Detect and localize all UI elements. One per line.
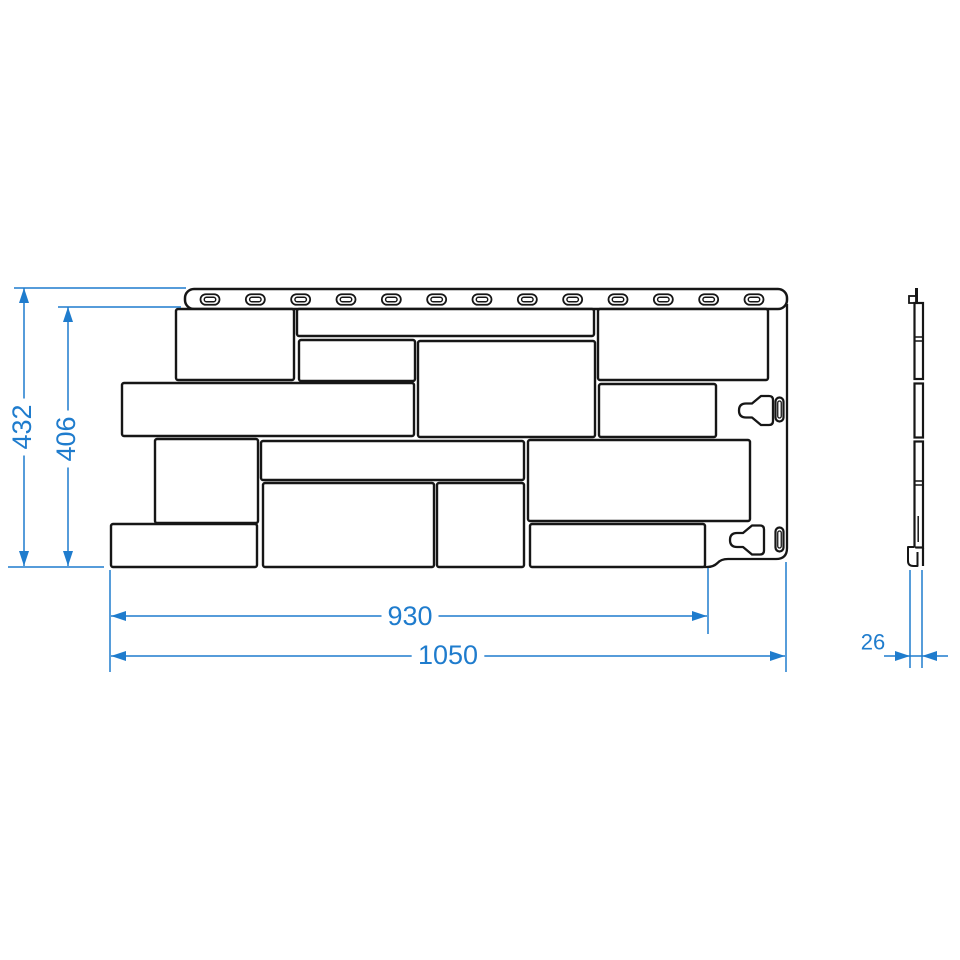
dimension-field-width: 930 (111, 601, 707, 631)
front-view (111, 289, 787, 567)
nail-slot-inner (703, 297, 715, 302)
dimension-arrow (895, 651, 910, 661)
side-profile-segment (915, 384, 924, 438)
stone-block (437, 483, 524, 567)
nail-slot-inner (431, 297, 443, 302)
dimension-arrow (111, 651, 126, 661)
dimension-arrow (63, 551, 73, 566)
dim-label-field-width: 930 (387, 601, 432, 631)
stone-block (263, 483, 434, 567)
panel-drawing-svg: 432406930105026 (0, 0, 960, 960)
stone-block (261, 441, 524, 480)
nail-slot-inner (658, 297, 670, 302)
drawing-canvas: 432406930105026 (0, 0, 960, 960)
mounting-hook (730, 526, 784, 555)
stone-blocks (111, 309, 768, 567)
dimension-arrow (19, 288, 29, 303)
side-view (908, 288, 923, 566)
stone-block (155, 439, 258, 523)
side-profile-hook (908, 547, 918, 566)
stone-block (598, 309, 768, 380)
dimension-arrow (770, 651, 785, 661)
dimension-arrow (19, 551, 29, 566)
dim-label-overall-height: 432 (7, 404, 37, 449)
stone-block (299, 340, 415, 381)
dimension-arrow (111, 611, 126, 621)
hook-funnel (730, 526, 764, 555)
stone-block (530, 524, 705, 567)
mounting-hook (739, 396, 784, 425)
stone-block (418, 341, 595, 437)
nail-slot-inner (386, 297, 398, 302)
dimension-arrow (692, 611, 707, 621)
dimension-field-height: 406 (51, 307, 81, 566)
nail-slot-inner (340, 297, 352, 302)
dimension-arrow (922, 651, 937, 661)
nail-slot-inner (295, 297, 307, 302)
stone-block (297, 309, 594, 336)
stone-block (111, 524, 257, 567)
dimension-arrow (63, 307, 73, 322)
stone-block (176, 309, 294, 380)
dimension-overall-height: 432 (7, 288, 37, 566)
nail-slot-inner (250, 297, 261, 302)
hook-funnel (739, 396, 773, 425)
stone-block (122, 383, 414, 436)
nail-slot-inner (476, 297, 488, 302)
dim-label-overall-width: 1050 (418, 640, 478, 670)
stone-block (528, 440, 750, 521)
nail-slot-inner (567, 297, 579, 302)
nail-slot-inner (612, 297, 624, 302)
dimension-panel-thickness: 26 (861, 630, 948, 662)
nail-slot-inner (522, 297, 534, 302)
nail-slot-inner (748, 297, 760, 302)
dimension-overall-width: 1050 (111, 640, 785, 670)
dim-label-field-height: 406 (51, 416, 81, 461)
stone-block (599, 384, 716, 437)
dim-label-panel-thickness: 26 (861, 630, 885, 655)
nail-slot-inner (204, 297, 216, 302)
